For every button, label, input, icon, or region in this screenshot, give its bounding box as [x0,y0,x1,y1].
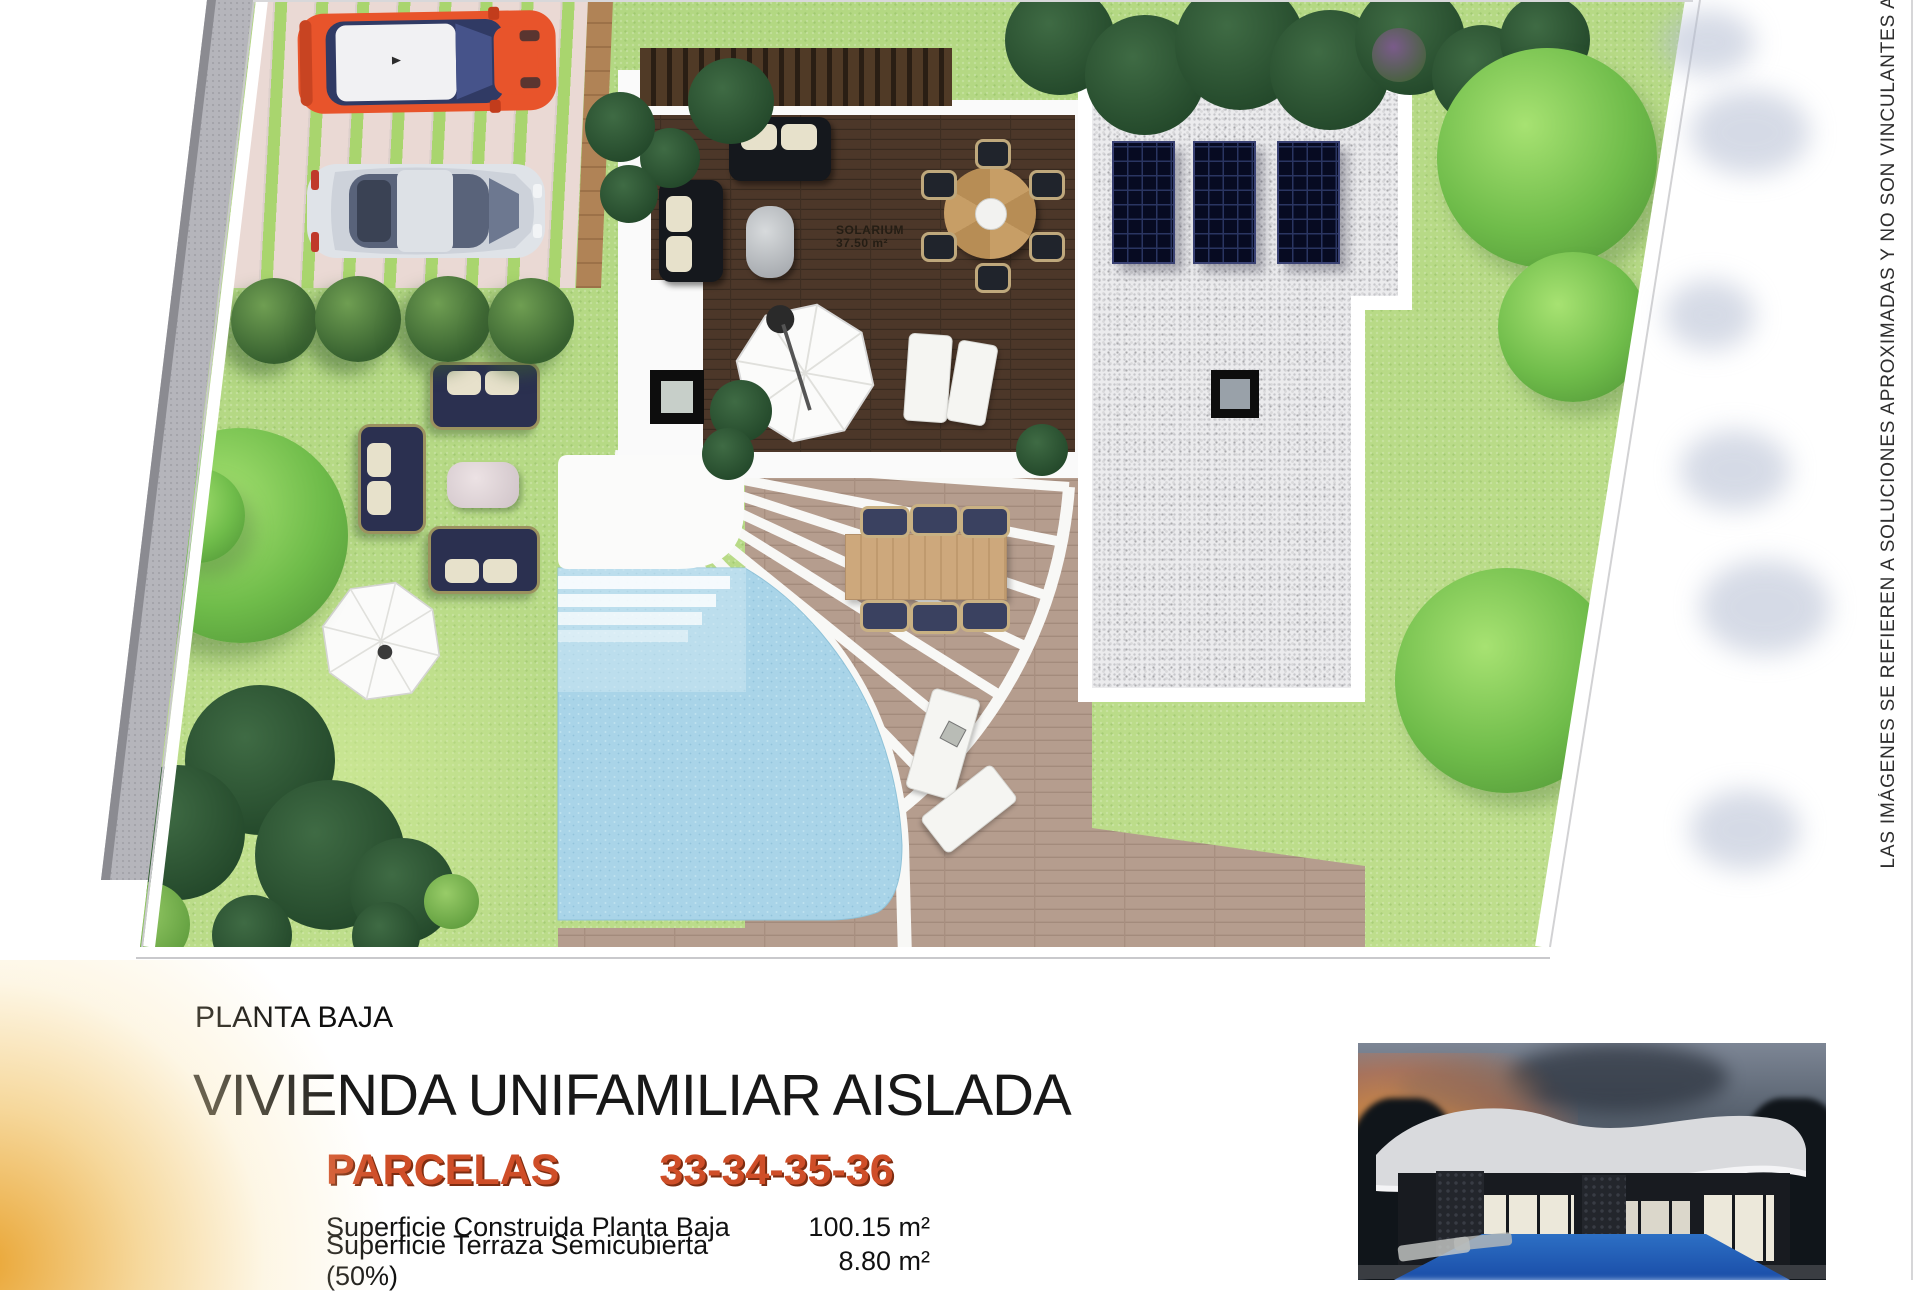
sun-glow [0,960,460,1290]
tree-shadow-3 [1665,280,1755,350]
tree-shadow-6 [1690,790,1800,870]
tree-shadow-1 [1660,10,1755,75]
surface-row-2-value: 8.80 m² [780,1246,930,1277]
tree-shadow-2 [1690,90,1810,175]
plot-boundary [0,0,1920,960]
parcels-numbers: 33-34-35-36 [659,1146,893,1194]
tree-shadow-5 [1700,560,1830,655]
disclaimer-wrap: LAS IMÁGENES SE REFIEREN A SOLUCIONES AP… [1870,0,1904,868]
page: { "plan": { "solarium_label": "SOLARIUM"… [0,0,1920,1280]
villa-photo [1358,1043,1826,1280]
tree-shadow-4 [1680,430,1790,510]
surface-row-1-value: 100.15 m² [780,1212,930,1243]
disclaimer-vertical: LAS IMÁGENES SE REFIEREN A SOLUCIONES AP… [1878,0,1900,868]
page-edge-line [1911,0,1913,1280]
site-plan: SOLARIUM 37.50 m² [0,0,1920,960]
